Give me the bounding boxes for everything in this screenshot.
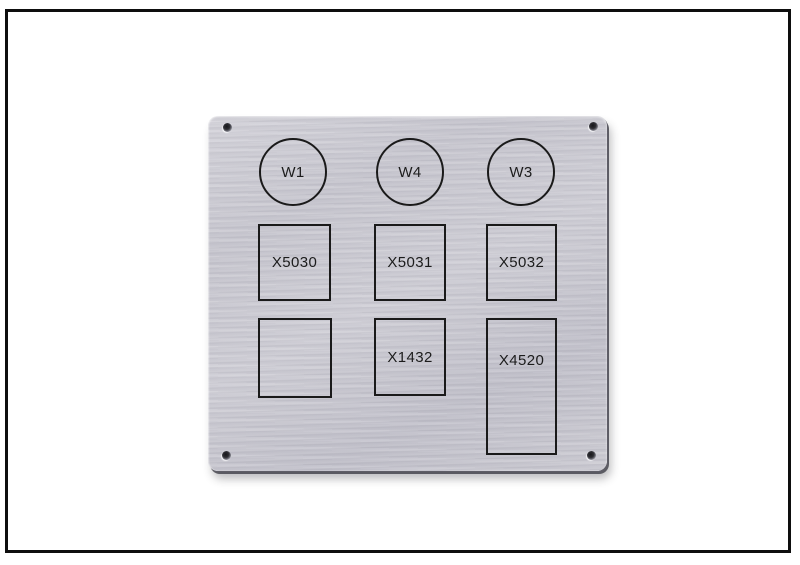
panel-cutout-x5030: X5030 [258, 224, 331, 301]
screw-hole-bottom-left-icon [222, 451, 231, 460]
cutout-label: X5031 [387, 254, 432, 271]
screw-hole-top-left-icon [223, 123, 232, 132]
circle-label: W3 [509, 164, 532, 181]
cutout-label: X5030 [272, 254, 317, 271]
cutout-label: X1432 [387, 349, 432, 366]
panel-cutout-x1432: X1432 [374, 318, 446, 396]
screw-hole-bottom-right-icon [587, 451, 596, 460]
cutout-label: X4520 [499, 352, 544, 369]
cutout-label: X5032 [499, 254, 544, 271]
circle-label: W4 [398, 164, 421, 181]
screw-hole-top-right-icon [589, 122, 598, 131]
panel-circle-w1: W1 [259, 138, 327, 206]
circle-label: W1 [281, 164, 304, 181]
panel-cutout-blank [258, 318, 332, 398]
metal-panel: W1 W4 W3 X5030 X5031 X5032 X1432 X4520 [208, 116, 607, 471]
panel-circle-w4: W4 [376, 138, 444, 206]
panel-cutout-x5032: X5032 [486, 224, 557, 301]
panel-cutout-x4520: X4520 [486, 318, 557, 455]
photo-frame: W1 W4 W3 X5030 X5031 X5032 X1432 X4520 [5, 9, 791, 553]
panel-circle-w3: W3 [487, 138, 555, 206]
panel-cutout-x5031: X5031 [374, 224, 446, 301]
